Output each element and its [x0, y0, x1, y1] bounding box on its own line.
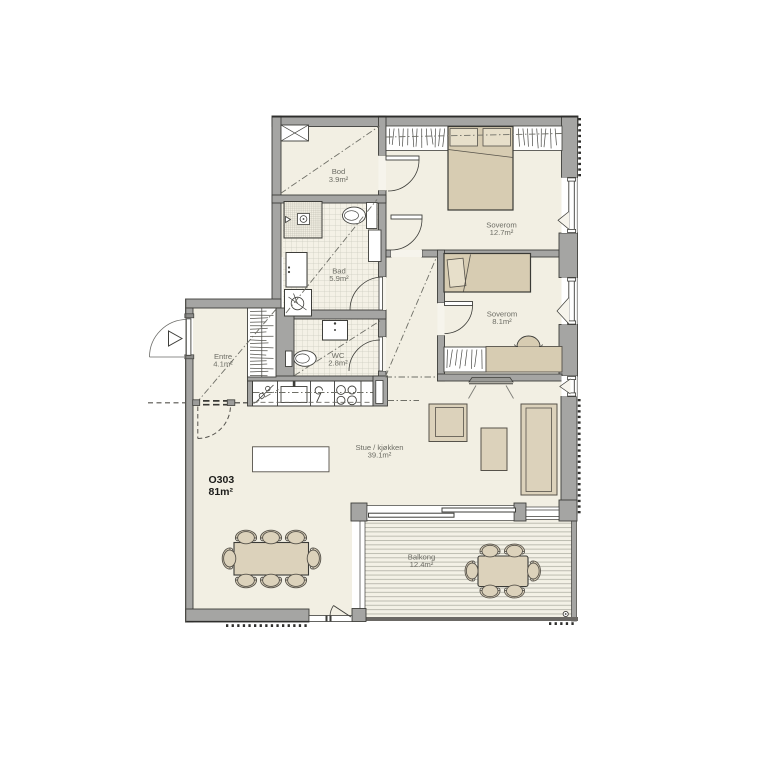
svg-text:5.9m²: 5.9m²: [329, 274, 349, 283]
svg-text:12.4m²: 12.4m²: [410, 560, 434, 569]
svg-text:8.1m²: 8.1m²: [492, 317, 512, 326]
svg-text:4.1m²: 4.1m²: [213, 359, 233, 368]
svg-text:O303: O303: [209, 474, 235, 486]
svg-text:12.7m²: 12.7m²: [490, 228, 514, 237]
svg-text:81m²: 81m²: [209, 486, 234, 498]
svg-text:39.1m²: 39.1m²: [368, 451, 392, 460]
svg-text:2.8m²: 2.8m²: [328, 359, 348, 368]
svg-text:3.9m²: 3.9m²: [329, 175, 349, 184]
